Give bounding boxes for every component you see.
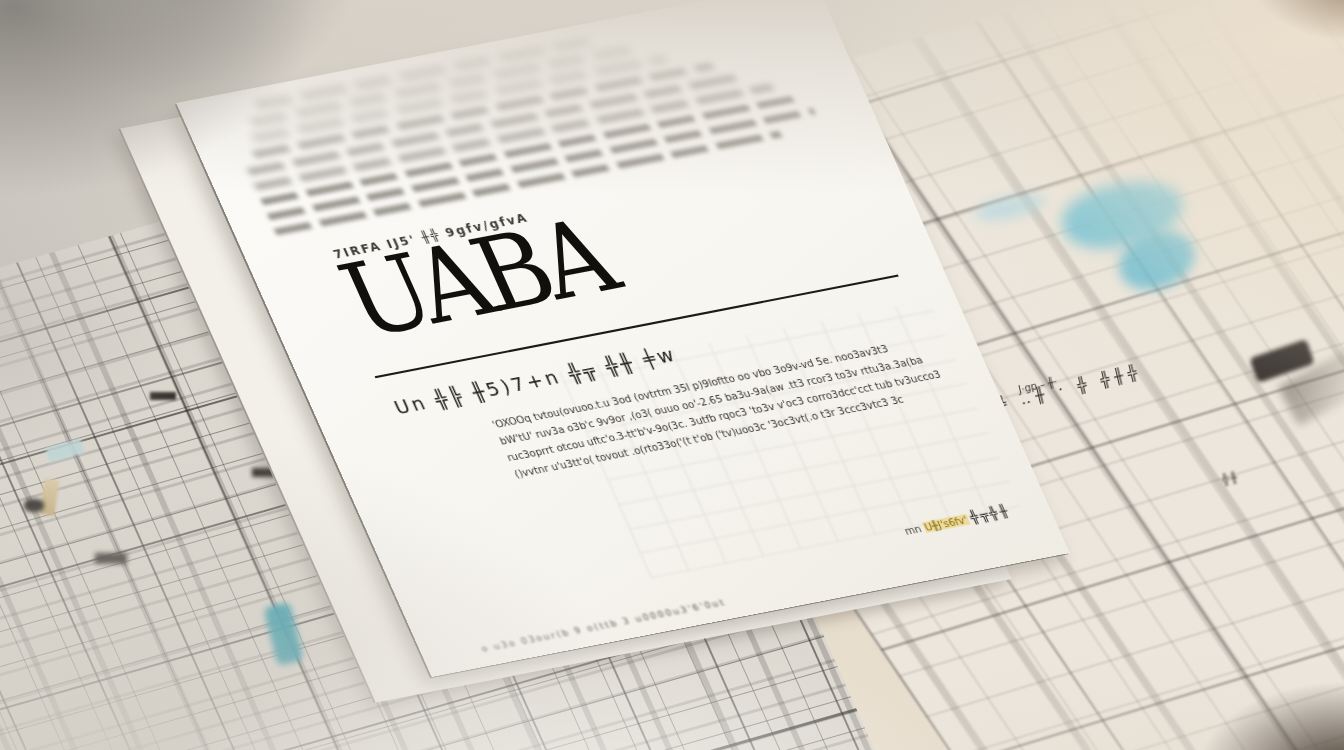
map-ink-smudge: [95, 553, 127, 564]
map-marker-dark-dot: [24, 499, 44, 512]
footer-pre: mn: [903, 523, 923, 536]
document-faint-map-watermark: [559, 300, 1021, 578]
map-ink-smudge: [150, 392, 176, 400]
photo-scene: ·uu· ╬ ‥╫ · ╬ ╬╫╬ J·gp – ╫· ╬╫ 7IRFA IJ5…: [0, 0, 1344, 750]
